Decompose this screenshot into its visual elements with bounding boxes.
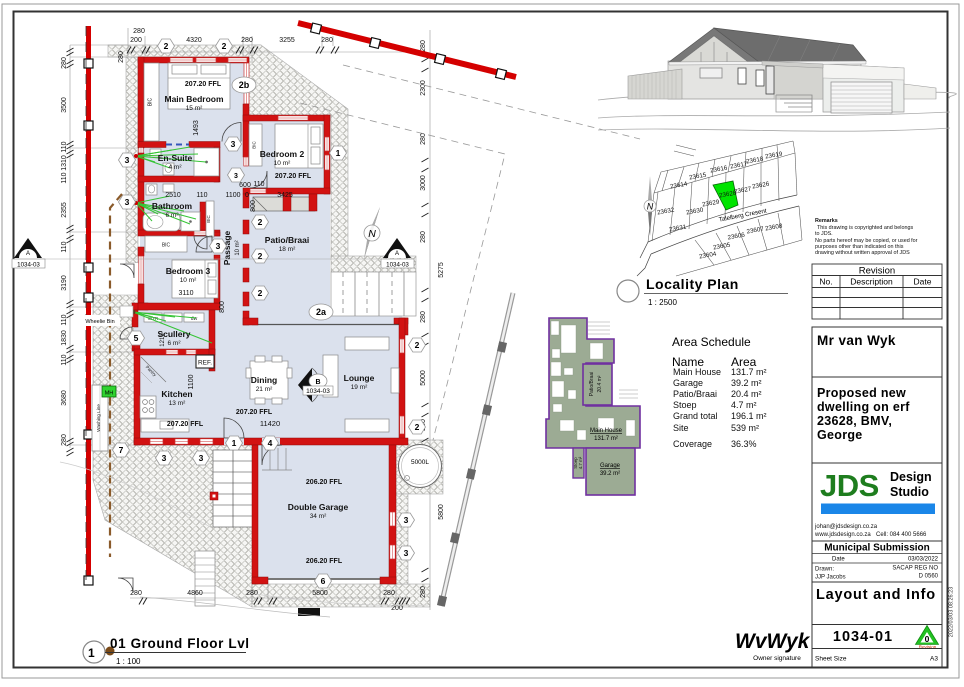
svg-text:20.4 m²: 20.4 m² (597, 375, 603, 392)
svg-text:280: 280 (61, 434, 68, 446)
svg-text:Double Garage: Double Garage (288, 502, 349, 512)
svg-text:BIC: BIC (148, 97, 154, 106)
svg-text:23628, BMV,: 23628, BMV, (817, 414, 892, 428)
svg-text:to JDS.: to JDS. (815, 231, 833, 237)
svg-text:N: N (647, 202, 654, 212)
svg-text:BIC: BIC (252, 141, 257, 149)
svg-text:2: 2 (164, 41, 169, 51)
svg-text:1034-03: 1034-03 (386, 262, 409, 269)
svg-text:280: 280 (241, 37, 253, 44)
svg-text:800: 800 (219, 301, 226, 313)
svg-text:3: 3 (199, 453, 204, 463)
svg-text:20.4 m²: 20.4 m² (731, 389, 762, 399)
svg-text:280: 280 (130, 590, 142, 597)
svg-text:3: 3 (125, 197, 130, 207)
svg-text:7: 7 (119, 445, 124, 455)
svg-text:34 m²: 34 m² (310, 513, 327, 520)
svg-text:2: 2 (258, 251, 263, 261)
svg-text:4320: 4320 (186, 37, 202, 44)
svg-text:Locality Plan: Locality Plan (646, 276, 739, 292)
svg-text:3: 3 (216, 241, 221, 251)
svg-text:110: 110 (61, 172, 68, 183)
svg-text:Main Bedroom: Main Bedroom (164, 94, 223, 104)
svg-text:Date: Date (832, 557, 845, 563)
svg-text:1830: 1830 (61, 330, 68, 346)
svg-text:1034-03: 1034-03 (17, 262, 40, 269)
svg-text:39.2 m²: 39.2 m² (600, 471, 620, 477)
svg-text:Bedroom 3: Bedroom 3 (166, 266, 211, 276)
svg-text:3425: 3425 (277, 192, 293, 199)
svg-text:4860: 4860 (187, 590, 203, 597)
svg-text:3: 3 (231, 139, 236, 149)
svg-text:3680: 3680 (61, 390, 68, 406)
svg-text:5000L: 5000L (411, 459, 429, 466)
svg-text:Design: Design (890, 470, 932, 484)
svg-text:REF.: REF. (198, 360, 212, 367)
svg-text:Grand total: Grand total (673, 411, 718, 421)
svg-text:Bathroom: Bathroom (152, 201, 193, 211)
svg-text:Cell: 084 400 5666: Cell: 084 400 5666 (876, 532, 927, 538)
svg-text:280: 280 (133, 28, 145, 35)
svg-text:3: 3 (125, 155, 130, 165)
svg-text:Main House: Main House (673, 367, 721, 377)
svg-text:13 m²: 13 m² (169, 400, 186, 407)
svg-text:19 m²: 19 m² (351, 384, 368, 391)
svg-text:3000: 3000 (420, 175, 427, 191)
svg-text:4.7 m²: 4.7 m² (578, 456, 583, 469)
svg-text:1: 1 (232, 438, 237, 448)
svg-text:2355: 2355 (61, 202, 68, 218)
svg-text:0: 0 (245, 192, 249, 199)
svg-text:Patio/Braai: Patio/Braai (265, 235, 309, 245)
svg-text:N: N (368, 228, 376, 240)
svg-text:Washing Line: Washing Line (96, 404, 101, 432)
svg-text:3: 3 (404, 515, 409, 525)
svg-text:110: 110 (61, 314, 68, 325)
svg-text:5: 5 (134, 333, 139, 343)
svg-text:10 m²: 10 m² (274, 160, 291, 167)
svg-text:No.: No. (819, 277, 832, 287)
svg-text:George: George (817, 428, 863, 442)
svg-text:5000: 5000 (420, 370, 427, 386)
svg-text:5800: 5800 (312, 590, 328, 597)
svg-text:03/03/2022: 03/03/2022 (908, 557, 939, 563)
svg-text:5275: 5275 (438, 262, 445, 278)
svg-text:Remarks: Remarks (815, 218, 838, 224)
svg-text:110: 110 (253, 181, 264, 188)
svg-text:2b: 2b (239, 80, 250, 90)
svg-text:3500: 3500 (61, 97, 68, 113)
svg-text:206.20 FFL: 206.20 FFL (306, 479, 343, 486)
svg-text:JDS: JDS (820, 468, 879, 503)
svg-text:600: 600 (239, 182, 251, 189)
svg-text:A3: A3 (930, 656, 938, 663)
svg-text:280: 280 (420, 133, 427, 145)
svg-text:280: 280 (61, 57, 68, 69)
svg-text:207.20 FFL: 207.20 FFL (236, 409, 273, 416)
svg-text:280: 280 (321, 37, 333, 44)
svg-text:Main House: Main House (590, 428, 623, 434)
svg-text:0: 0 (925, 634, 930, 644)
svg-text:Layout and Info: Layout and Info (816, 587, 936, 603)
svg-text:2: 2 (258, 288, 263, 298)
svg-text:131.7 m²: 131.7 m² (594, 436, 618, 442)
svg-text:1 : 2500: 1 : 2500 (648, 298, 677, 307)
svg-text:1100: 1100 (188, 374, 195, 389)
svg-text:Site: Site (673, 423, 689, 433)
svg-text:Stoep: Stoep (673, 400, 697, 410)
svg-text:Proposed new: Proposed new (817, 386, 906, 400)
svg-text:A: A (26, 251, 30, 257)
svg-text:1034-01: 1034-01 (833, 629, 893, 645)
svg-text:Mr van Wyk: Mr van Wyk (817, 333, 896, 348)
svg-text:drawing without written approv: drawing without written approval of JDS (815, 250, 910, 256)
svg-text:280: 280 (420, 231, 427, 243)
svg-text:01 Ground Floor Lvl: 01 Ground Floor Lvl (110, 636, 250, 651)
svg-text:6 m²: 6 m² (168, 340, 182, 347)
svg-text:110: 110 (61, 141, 68, 152)
svg-text:JJP Jacobs: JJP Jacobs (815, 575, 846, 581)
svg-text:MH: MH (105, 391, 114, 397)
svg-text:539 m²: 539 m² (731, 423, 759, 433)
svg-text:Wheelie Bin: Wheelie Bin (85, 319, 114, 325)
svg-text:110: 110 (61, 354, 68, 365)
svg-text:B: B (315, 379, 320, 386)
svg-text:1034-03: 1034-03 (306, 388, 330, 395)
svg-text:Dining: Dining (251, 375, 277, 385)
svg-text:Patio/Braai: Patio/Braai (673, 389, 717, 399)
svg-text:3: 3 (234, 173, 238, 180)
svg-text:2a: 2a (316, 307, 327, 317)
svg-text:Sheet Size: Sheet Size (815, 656, 847, 663)
svg-text:2: 2 (222, 41, 227, 51)
svg-text:BIC: BIC (162, 243, 171, 249)
svg-text:1493: 1493 (193, 120, 200, 136)
svg-text:Garage: Garage (600, 463, 621, 469)
svg-text:2300: 2300 (420, 80, 427, 96)
svg-text:SACAP REG NO: SACAP REG NO (892, 566, 938, 572)
svg-text:Coverage: Coverage (673, 439, 712, 449)
svg-text:dw: dw (191, 316, 198, 322)
svg-text:Owner signature: Owner signature (753, 655, 801, 662)
svg-text:280: 280 (246, 590, 258, 597)
svg-text:196.1 m²: 196.1 m² (731, 411, 767, 421)
svg-text:280: 280 (383, 590, 395, 597)
svg-text:11420: 11420 (260, 419, 280, 428)
svg-text:4: 4 (268, 438, 273, 448)
svg-text:1: 1 (88, 646, 95, 660)
svg-text:3110: 3110 (178, 290, 193, 297)
svg-text:3: 3 (404, 548, 409, 558)
svg-text:280: 280 (420, 311, 427, 323)
svg-text:2022/03/03 08:26:23: 2022/03/03 08:26:23 (949, 587, 955, 637)
svg-text:18 m²: 18 m² (279, 246, 296, 253)
svg-text:207.20 FFL: 207.20 FFL (167, 421, 204, 428)
svg-text:200: 200 (130, 37, 142, 44)
svg-text:2: 2 (258, 217, 263, 227)
svg-text:3190: 3190 (61, 275, 68, 291)
svg-text:3: 3 (162, 453, 167, 463)
svg-text:2: 2 (415, 422, 420, 432)
svg-text:Date: Date (914, 277, 932, 287)
svg-text:BIC: BIC (206, 215, 211, 223)
svg-text:Area Schedule: Area Schedule (672, 335, 751, 349)
svg-text:WvWyk: WvWyk (735, 630, 811, 653)
svg-text:21 m²: 21 m² (256, 386, 273, 393)
svg-text:10 m²: 10 m² (180, 277, 197, 284)
svg-text:A: A (395, 251, 399, 257)
svg-text:1: 1 (336, 148, 341, 158)
svg-text:En-Suite: En-Suite (158, 153, 193, 163)
svg-text:www.jdsdesign.co.za: www.jdsdesign.co.za (814, 532, 871, 538)
svg-text:2510: 2510 (165, 192, 181, 199)
svg-text:110: 110 (196, 192, 207, 199)
svg-text:Patio/Braai: Patio/Braai (589, 372, 595, 396)
svg-text:131.7 m²: 131.7 m² (731, 367, 767, 377)
svg-text:280: 280 (420, 586, 427, 598)
svg-text:206.20 FFL: 206.20 FFL (306, 558, 343, 565)
svg-text:6 m²: 6 m² (166, 212, 180, 219)
svg-text:Garage: Garage (673, 378, 703, 388)
svg-text:dwelling on erf: dwelling on erf (817, 400, 910, 414)
svg-text:Drawn:: Drawn: (815, 567, 834, 573)
svg-text:Bedroom 2: Bedroom 2 (260, 149, 305, 159)
svg-text:10 m²: 10 m² (235, 240, 241, 255)
svg-text:5800: 5800 (438, 504, 445, 520)
svg-text:207.20 FFL: 207.20 FFL (275, 173, 312, 180)
svg-text:Description: Description (850, 277, 893, 287)
svg-text:280: 280 (118, 51, 125, 63)
svg-text:15 m²: 15 m² (186, 105, 203, 112)
svg-text:4.7 m²: 4.7 m² (731, 400, 757, 410)
svg-text:39.2 m²: 39.2 m² (731, 378, 762, 388)
svg-text:johan@jdsdesign.co.za: johan@jdsdesign.co.za (814, 524, 878, 530)
svg-text:800: 800 (250, 200, 257, 212)
svg-text:1 : 100: 1 : 100 (116, 657, 141, 666)
svg-text:6: 6 (321, 576, 326, 586)
svg-text:Municipal Submission: Municipal Submission (824, 543, 930, 554)
svg-text:Revision: Revision (859, 266, 895, 277)
svg-text:1210: 1210 (160, 333, 166, 347)
svg-text:Lounge: Lounge (344, 373, 375, 383)
svg-text:2: 2 (415, 340, 420, 350)
svg-text:36.3%: 36.3% (731, 439, 757, 449)
svg-text:207.20 FFL: 207.20 FFL (185, 81, 222, 88)
svg-text:200: 200 (391, 605, 403, 612)
svg-text:Studio: Studio (890, 485, 929, 499)
svg-text:D 0560: D 0560 (919, 574, 939, 580)
svg-text:280: 280 (420, 40, 427, 52)
svg-text:1100: 1100 (225, 192, 240, 199)
svg-text:3255: 3255 (279, 37, 295, 44)
svg-text:4 m²: 4 m² (169, 164, 183, 171)
